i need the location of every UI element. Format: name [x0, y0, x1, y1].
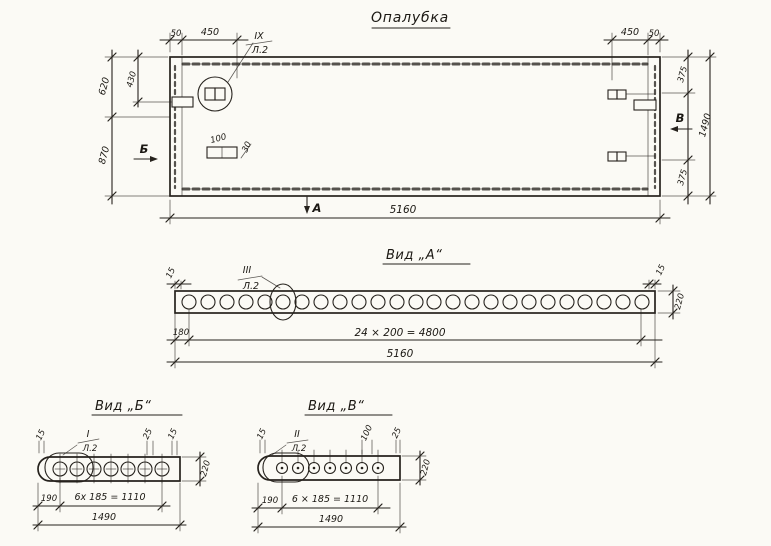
- view-b-dims-top: 15 25 15: [34, 427, 180, 455]
- anchor-item-left-half: [205, 88, 215, 100]
- view-b-dim-220: 220: [182, 452, 213, 486]
- view-a-dims-bottom: 180 24 × 200 = 4800 5160: [167, 309, 662, 368]
- dim-15-right-b: 15: [166, 427, 180, 441]
- dim-15-left-a: 15: [164, 266, 178, 280]
- interior-detail: 100 30: [207, 132, 254, 158]
- plan-view: IX Л.2 100 30 50 450: [97, 27, 716, 224]
- dim-15-v: 15: [255, 427, 269, 441]
- embedded-plate-right: [634, 100, 656, 110]
- view-a-callout-sheet: Л.2: [242, 281, 259, 292]
- dim-25-b: 25: [141, 427, 155, 441]
- view-v-title: Вид „В“: [308, 399, 364, 414]
- section-marker-b: Б: [134, 142, 158, 162]
- dim-220-a: 220: [673, 292, 687, 310]
- dim-220-v: 220: [419, 458, 433, 476]
- dim-5160-a: 5160: [387, 348, 414, 360]
- dim-6x185-b: 6х 185 = 1110: [75, 492, 146, 503]
- dim-5160-plan: 5160: [390, 204, 417, 216]
- marker-v-label: В: [676, 111, 685, 125]
- view-v-callout-number: II: [294, 429, 300, 440]
- formwork-outline: [170, 57, 660, 196]
- formwork-inner-edges: [182, 57, 648, 196]
- view-a-dim-220: 220: [658, 285, 687, 319]
- embedded-items-right: [608, 90, 656, 161]
- dim-1490-v: 1490: [319, 514, 343, 525]
- dim-15-right-a: 15: [654, 263, 668, 277]
- view-a-fraction-line: [238, 276, 262, 280]
- view-b-callout-number: I: [87, 429, 90, 440]
- view-a-callout-leader: [262, 277, 280, 288]
- view-b-callout-sheet: Л.2: [82, 444, 98, 454]
- view-a-callout-oval: [270, 284, 296, 320]
- dim-190-v: 190: [262, 496, 278, 506]
- plan-dims-left: 620 430 870: [97, 50, 172, 204]
- anchor-item-right-half: [215, 88, 225, 100]
- view-a-strip: [175, 291, 655, 313]
- view-v: Вид „В“ II Л.2 15 100 25 220: [252, 399, 433, 533]
- view-a-title: Вид „А“: [386, 248, 442, 263]
- dim-detail-100: 100: [209, 132, 227, 146]
- plan-dims-top-right: 450 50: [604, 27, 668, 80]
- view-b-title: Вид „Б“: [95, 399, 151, 414]
- dim-870: 870: [97, 145, 112, 165]
- dim-1490-b: 1490: [92, 512, 116, 523]
- view-a-dim-right-15: 15: [643, 263, 668, 289]
- embed-sq: [608, 90, 617, 99]
- view-v-dims-top: 15 100 25: [255, 424, 404, 454]
- bolt-stems: [60, 454, 162, 483]
- dim-50-left: 50: [171, 29, 182, 39]
- dim-50-right: 50: [649, 29, 660, 39]
- dim-100-v: 100: [359, 424, 375, 443]
- dim-1490: 1490: [697, 112, 714, 138]
- callout-sheet-ref: Л.2: [251, 45, 268, 56]
- marker-b-label: Б: [140, 142, 149, 156]
- plan-dims-right: 375 1490 375: [662, 50, 716, 204]
- dim-450-right: 450: [621, 27, 639, 38]
- dim-6x185-v: 6 × 185 = 1110: [292, 494, 368, 505]
- embed-sq: [617, 152, 626, 161]
- embedded-plate-left: [172, 97, 193, 107]
- view-b-dims-bottom: 190 6х 185 = 1110 1490: [33, 478, 186, 531]
- embed-sq: [608, 152, 617, 161]
- marker-a-label: А: [312, 201, 322, 215]
- view-v-callout-sheet: Л.2: [291, 444, 307, 454]
- formwork-scallop-horizontal: [183, 64, 647, 189]
- view-v-callout-outline: [263, 453, 309, 482]
- marker-a-arrowhead: [304, 206, 310, 214]
- callout-number: IX: [254, 31, 264, 42]
- section-marker-v: В: [670, 111, 692, 132]
- formwork-drawing-sheet: Опалубка IX Л.2 100 30: [0, 0, 771, 546]
- view-a-holes: [182, 295, 649, 309]
- plan-dim-bottom: 5160: [160, 200, 670, 224]
- section-marker-a: А: [304, 197, 321, 215]
- dim-190-b: 190: [41, 494, 57, 504]
- ext-lines: [38, 478, 180, 531]
- dim-lines: [167, 340, 662, 362]
- dim-450-left: 450: [201, 27, 219, 38]
- marker-v-arrowhead: [670, 126, 678, 132]
- view-v-dim-220: 220: [402, 451, 433, 485]
- drawing-title: Опалубка: [371, 10, 449, 26]
- plan-dims-top-left: 50 450: [160, 27, 248, 78]
- view-b: Вид „Б“ I Л.2 15 25 15 220: [33, 399, 213, 531]
- dim-24x200: 24 × 200 = 4800: [354, 327, 445, 339]
- dim-620: 620: [97, 76, 112, 96]
- view-a-callout-number: III: [243, 265, 252, 276]
- dim-detail-30: 30: [240, 140, 254, 154]
- marker-b-arrowhead: [150, 156, 158, 162]
- view-v-dims-bottom: 190 6 × 185 = 1110 1490: [252, 476, 406, 533]
- dim-180: 180: [173, 328, 189, 338]
- dim-430: 430: [125, 70, 139, 88]
- view-a-dim-left-15: 15: [164, 266, 191, 289]
- view-b-holes: [53, 454, 169, 483]
- view-a: Вид „А“ III Л.2 15: [164, 248, 687, 368]
- dim-15-left-b: 15: [34, 428, 48, 442]
- dim-25-v: 25: [390, 426, 404, 440]
- formwork-scallop-vertical: [175, 66, 655, 188]
- dim-220-b: 220: [199, 459, 213, 477]
- embed-sq: [617, 90, 626, 99]
